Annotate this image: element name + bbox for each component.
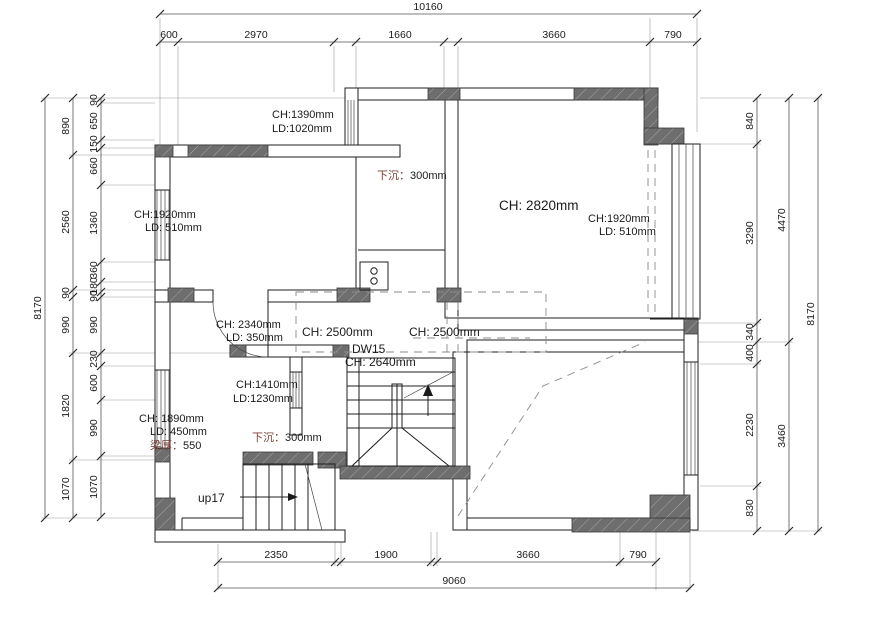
dim-left-mid-0: 890: [60, 117, 72, 135]
bay-window-right: [672, 144, 700, 319]
label-door-mid-ch: CH: 2340mm: [216, 319, 281, 331]
dim-right-inner-0: 840: [744, 112, 756, 130]
dim-right-inner-2: 340: [744, 323, 756, 341]
label-sunken-top: 下沉：300mm: [377, 169, 447, 182]
dim-left-inner-2: 150: [88, 135, 100, 153]
fixture-symbol: [360, 262, 388, 290]
dim-left-mid-3: 990: [60, 316, 72, 334]
floor-plan-drawing: 10160 600 2970 1660 3660 790 2350 1900 3…: [0, 0, 893, 639]
room-labels: CH:1390mm LD:1020mm 下沉：300mm CH: 2820mm …: [134, 109, 656, 505]
label-window-right-ch: CH:1920mm: [588, 213, 650, 225]
dim-left-inner-9: 230: [88, 350, 100, 368]
dim-left-inner-5: 360: [88, 261, 100, 279]
dim-right-inner-1: 3290: [744, 221, 756, 245]
dim-top-4: 790: [664, 29, 682, 41]
dim-bottom-3: 790: [629, 549, 647, 561]
dim-left-inner-3: 660: [88, 157, 100, 175]
dim-left-mid-2: 90: [60, 287, 72, 299]
dim-bottom-1: 1900: [374, 549, 398, 561]
sloped-ceiling-dashed-line: [458, 342, 645, 516]
label-sunken-bottom: 下沉：300mm: [252, 431, 322, 444]
dim-top-2: 1660: [388, 29, 412, 41]
dim-left-total: 8170: [32, 296, 44, 320]
label-window-tl-ch: CH:1390mm: [272, 109, 334, 121]
label-window-small-ld: LD:1230mm: [233, 393, 293, 405]
dim-left-inner-7: 90: [88, 290, 100, 302]
label-living-ch: CH: 2820mm: [499, 198, 579, 213]
label-dw15: DW15: [352, 342, 386, 356]
dim-right-mid-0: 4470: [776, 208, 788, 232]
label-room-bl-ld: LD: 450mm: [150, 426, 207, 438]
label-hall-a: CH: 2500mm: [302, 325, 373, 339]
dim-right-inner-4: 2230: [744, 413, 756, 437]
dim-bottom-total: 9060: [442, 575, 466, 587]
label-door-mid-ld: LD: 350mm: [226, 332, 283, 344]
dim-left-inner-11: 990: [88, 419, 100, 437]
dim-left-inner-4: 1360: [88, 211, 100, 235]
dim-left-inner-1: 650: [88, 112, 100, 130]
label-window-tl-ld: LD:1020mm: [272, 123, 332, 135]
label-stair-ch: CH: 2640mm: [345, 355, 416, 369]
dim-right-inner-5: 830: [744, 499, 756, 517]
dim-left-inner-8: 990: [88, 316, 100, 334]
dim-right-inner-3: 400: [744, 344, 756, 362]
label-window-left-ch: CH:1920mm: [134, 209, 196, 221]
winder-staircase: [347, 358, 455, 466]
dim-top-1: 2970: [244, 29, 268, 41]
straight-staircase: [240, 464, 335, 530]
dim-right-total: 8170: [805, 302, 817, 326]
label-up17: up17: [198, 491, 225, 505]
dim-bottom-0: 2350: [264, 549, 288, 561]
label-room-bl-beam: 梁厚：550: [150, 438, 201, 452]
label-room-bl-ch: CH: 1890mm: [139, 413, 204, 425]
dim-left-mid-4: 1820: [60, 394, 72, 418]
dim-top-0: 600: [160, 29, 178, 41]
dim-left-inner-10: 600: [88, 374, 100, 392]
dim-top-3: 3660: [542, 29, 566, 41]
label-window-left-ld: LD: 510mm: [145, 222, 202, 234]
label-hall-b: CH: 2500mm: [409, 325, 480, 339]
dim-left-mid-1: 2560: [60, 210, 72, 234]
label-window-small-ch: CH:1410mm: [236, 379, 298, 391]
dim-top-total: 10160: [413, 1, 442, 13]
dim-bottom-2: 3660: [516, 549, 540, 561]
dim-left-inner-12: 1070: [88, 475, 100, 499]
dim-right-mid-1: 3460: [776, 424, 788, 448]
structural-columns: [155, 88, 698, 532]
dim-left-inner-0: 90: [88, 94, 100, 106]
label-window-right-ld: LD: 510mm: [599, 226, 656, 238]
floor-plan-canvas: 10160 600 2970 1660 3660 790 2350 1900 3…: [0, 0, 893, 639]
dim-left-mid-5: 1070: [60, 477, 72, 501]
